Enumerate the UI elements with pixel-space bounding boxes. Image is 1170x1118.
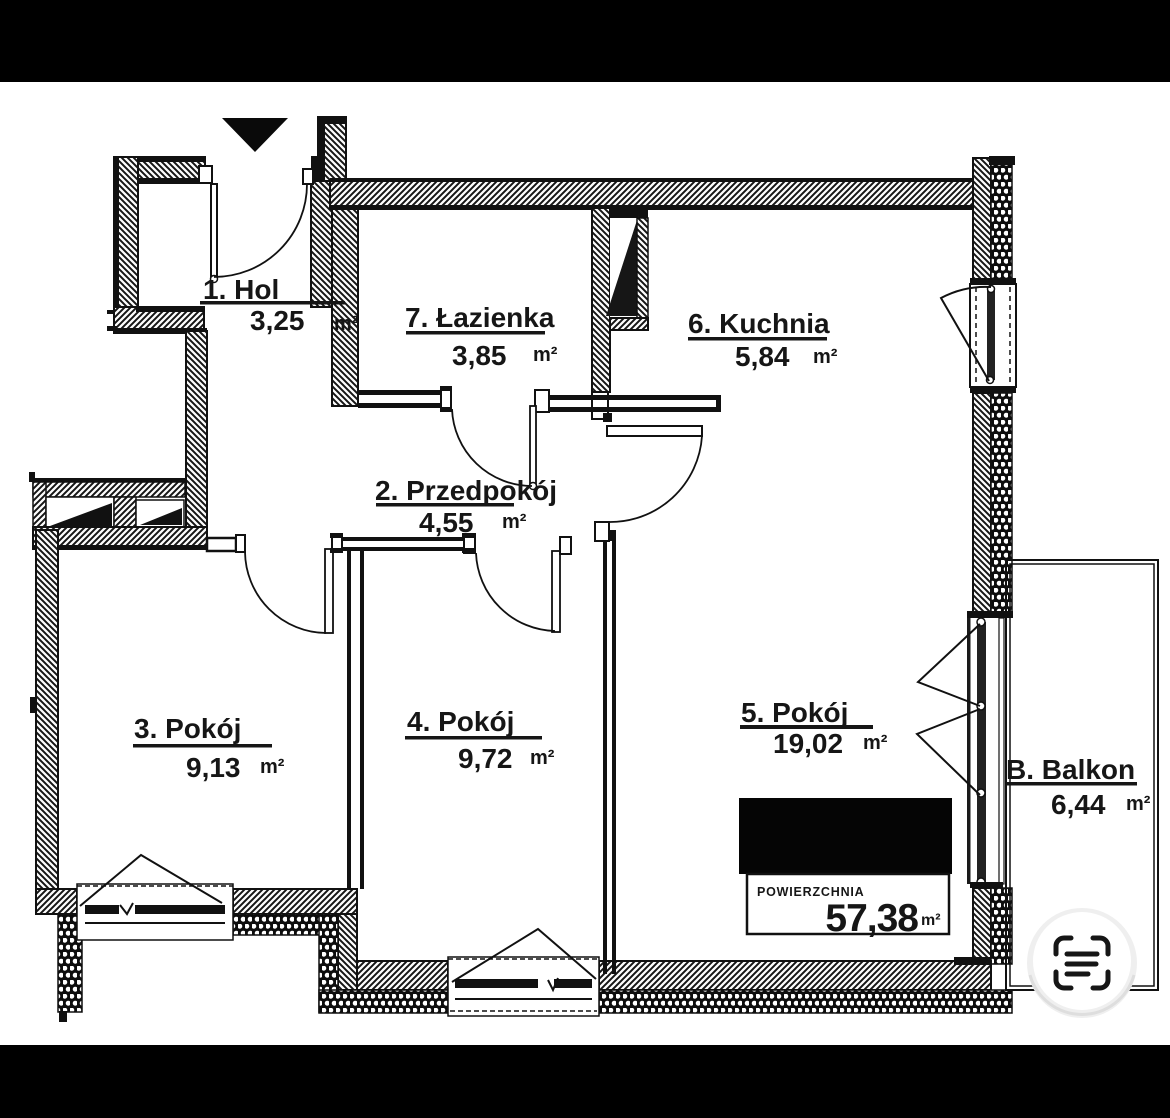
svg-text:m²: m² <box>863 732 888 754</box>
svg-text:9,13: 9,13 <box>186 752 241 783</box>
svg-text:7. Łazienka: 7. Łazienka <box>405 302 555 333</box>
svg-text:5,84: 5,84 <box>735 341 790 372</box>
svg-text:5. Pokój: 5. Pokój <box>741 697 848 728</box>
svg-text:6,44: 6,44 <box>1051 789 1106 820</box>
svg-text:m²: m² <box>260 756 285 778</box>
svg-text:57,38: 57,38 <box>825 897 918 940</box>
svg-text:4,55: 4,55 <box>419 507 474 538</box>
svg-text:19,02: 19,02 <box>773 728 843 759</box>
svg-text:m²: m² <box>334 313 359 335</box>
svg-text:3. Pokój: 3. Pokój <box>134 713 241 744</box>
svg-text:m²: m² <box>1126 793 1151 815</box>
svg-text:B. Balkon: B. Balkon <box>1006 754 1135 785</box>
svg-text:3,85: 3,85 <box>452 340 507 371</box>
svg-text:4. Pokój: 4. Pokój <box>407 706 514 737</box>
svg-text:2. Przedpokój: 2. Przedpokój <box>375 475 557 506</box>
svg-text:m²: m² <box>813 346 838 368</box>
svg-text:m²: m² <box>533 344 558 366</box>
svg-text:m²: m² <box>921 912 941 929</box>
svg-text:6. Kuchnia: 6. Kuchnia <box>688 308 830 339</box>
svg-text:9,72: 9,72 <box>458 743 513 774</box>
svg-text:1. Hol: 1. Hol <box>203 274 279 305</box>
svg-text:m²: m² <box>530 747 555 769</box>
svg-text:3,25: 3,25 <box>250 305 305 336</box>
svg-text:m²: m² <box>502 511 527 533</box>
